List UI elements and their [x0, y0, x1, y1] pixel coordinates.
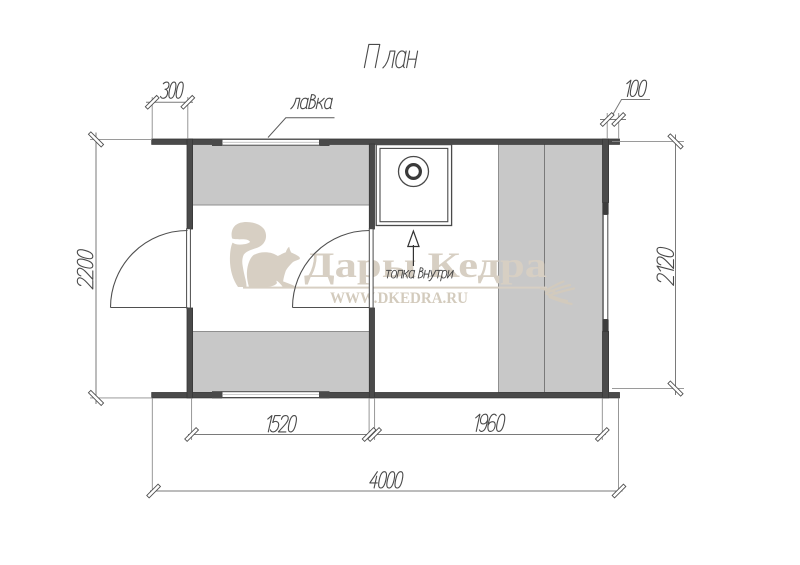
svg-text:WWW.DKEDRA.RU: WWW.DKEDRA.RU	[330, 290, 468, 307]
svg-text:Дары Кедра: Дары Кедра	[304, 245, 547, 285]
